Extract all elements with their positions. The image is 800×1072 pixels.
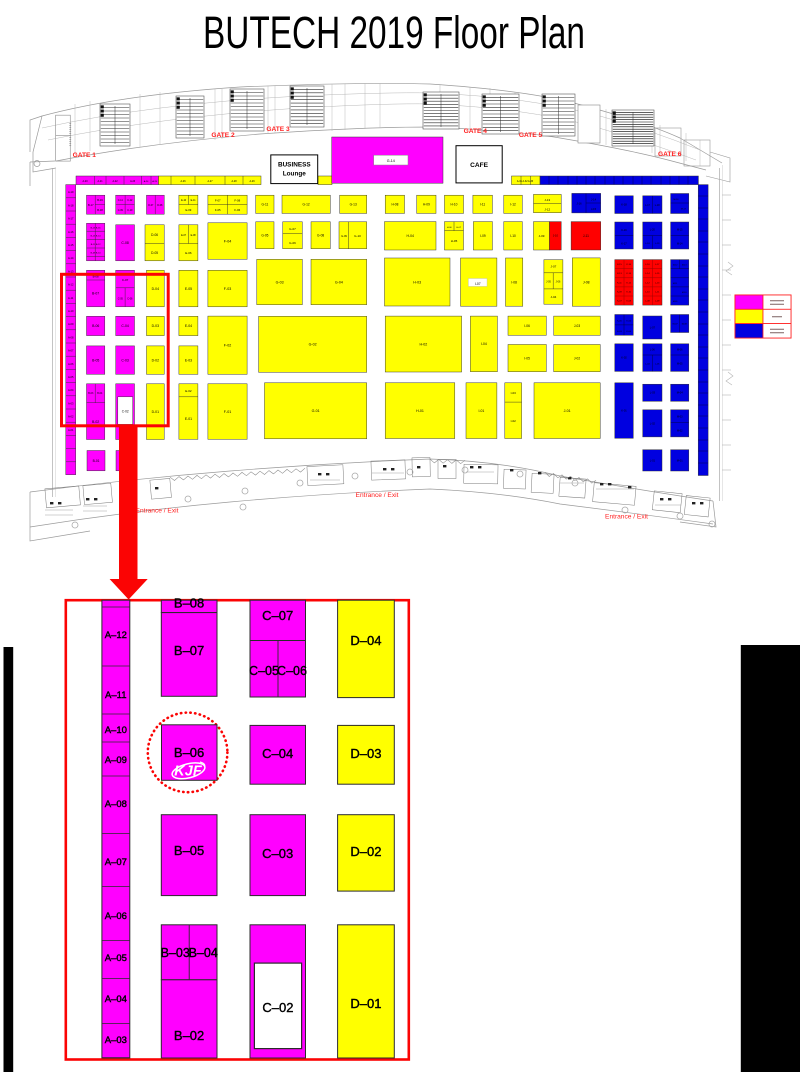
svg-text:C-10: C-10 — [127, 209, 133, 212]
svg-text:A–05: A–05 — [105, 953, 127, 964]
svg-text:A-27: A-27 — [207, 180, 213, 183]
svg-text:K-14: K-14 — [626, 273, 631, 275]
svg-text:L-09: L-09 — [655, 301, 660, 303]
svg-text:J-07: J-07 — [550, 265, 556, 269]
svg-text:H-09: H-09 — [423, 203, 430, 207]
svg-text:K-03: K-03 — [617, 331, 622, 333]
svg-text:A-02: A-02 — [68, 415, 74, 419]
svg-text:I-10: I-10 — [510, 234, 516, 238]
svg-text:E-07: E-07 — [181, 234, 187, 237]
svg-text:L-18: L-18 — [655, 204, 660, 207]
svg-text:A-04: A-04 — [68, 388, 74, 392]
svg-text:I-07: I-07 — [475, 282, 481, 286]
svg-text:J-10: J-10 — [553, 234, 559, 238]
svg-text:J-01: J-01 — [564, 409, 571, 413]
svg-text:K-13: K-13 — [617, 273, 622, 275]
svg-text:C–06: C–06 — [277, 664, 307, 678]
svg-text:A–11: A–11 — [105, 690, 126, 701]
svg-text:A-16: A-16 — [68, 230, 74, 234]
svg-text:L-06: L-06 — [650, 349, 655, 352]
svg-text:M-17: M-17 — [681, 209, 687, 211]
svg-text:B–07: B–07 — [174, 643, 204, 658]
svg-text:B–02: B–02 — [174, 1028, 204, 1043]
svg-text:M-16: M-16 — [674, 199, 680, 201]
svg-text:G-04: G-04 — [335, 280, 343, 284]
svg-text:K-15: K-15 — [617, 264, 622, 266]
svg-text:M-03: M-03 — [677, 416, 683, 419]
svg-text:A-24: A-24 — [144, 180, 149, 183]
svg-text:G-05: G-05 — [261, 233, 268, 237]
svg-text:B–03: B–03 — [161, 946, 190, 960]
svg-text:A–08: A–08 — [105, 799, 127, 810]
svg-text:H-08: H-08 — [391, 203, 398, 207]
svg-text:J-03: J-03 — [574, 324, 580, 328]
svg-text:J-05: J-05 — [546, 280, 551, 283]
svg-text:A-21: A-21 — [97, 180, 103, 183]
svg-text:B–05: B–05 — [174, 843, 204, 858]
svg-text:B-17: B-17 — [88, 203, 94, 207]
svg-text:B-03: B-03 — [88, 392, 94, 395]
svg-text:M-04: M-04 — [677, 391, 683, 395]
svg-text:L-07: L-07 — [650, 325, 656, 329]
svg-text:E-08: E-08 — [191, 234, 197, 237]
svg-text:A-22: A-22 — [112, 180, 118, 183]
svg-text:F-08: F-08 — [234, 198, 240, 202]
svg-text:J-13: J-13 — [544, 198, 550, 202]
svg-text:J-11: J-11 — [583, 234, 589, 238]
svg-text:J-08: J-08 — [583, 280, 590, 284]
svg-text:B-02: B-02 — [92, 420, 99, 424]
svg-text:L-15: L-15 — [655, 273, 660, 275]
svg-text:D–03: D–03 — [350, 746, 381, 761]
svg-text:J-14: J-14 — [591, 198, 597, 202]
svg-text:J-04: J-04 — [550, 295, 556, 299]
svg-text:BUTECH 2019 Floor Plan: BUTECH 2019 Floor Plan — [203, 7, 585, 58]
svg-text:A-26: A-26 — [180, 180, 186, 183]
svg-text:K-07: K-07 — [617, 301, 622, 303]
svg-text:M-07: M-07 — [673, 324, 679, 326]
svg-text:C–05: C–05 — [249, 664, 279, 678]
svg-text:C-12: C-12 — [127, 199, 133, 202]
svg-text:C–02: C–02 — [262, 1000, 293, 1015]
svg-text:A-31 A-32 A-33: A-31 A-32 A-33 — [517, 180, 534, 183]
svg-text:J-16: J-16 — [576, 202, 582, 206]
svg-text:D-04: D-04 — [152, 287, 159, 291]
svg-text:B–06: B–06 — [174, 745, 204, 760]
svg-text:C-06: C-06 — [127, 298, 133, 301]
svg-text:G-03: G-03 — [276, 280, 284, 284]
svg-text:CAFE: CAFE — [470, 162, 489, 169]
svg-text:A-23: A-23 — [130, 180, 136, 183]
svg-text:I-05: I-05 — [524, 356, 530, 360]
svg-text:J-12: J-12 — [544, 207, 550, 211]
svg-text:D-07: D-07 — [148, 204, 154, 207]
svg-text:I-06: I-06 — [524, 324, 530, 328]
svg-text:G-06: G-06 — [289, 241, 296, 245]
svg-text:C–03: C–03 — [262, 846, 293, 861]
svg-text:K-11: K-11 — [617, 282, 622, 284]
svg-text:A–04: A–04 — [105, 994, 127, 1005]
svg-text:K-16: K-16 — [621, 228, 627, 232]
svg-text:E-04: E-04 — [185, 324, 192, 328]
svg-text:L-18: L-18 — [645, 243, 650, 245]
svg-text:H-03: H-03 — [413, 280, 421, 284]
svg-text:M-02: M-02 — [677, 430, 683, 433]
svg-text:I-08: I-08 — [511, 280, 517, 284]
svg-text:L-16: L-16 — [645, 264, 650, 266]
svg-text:G-14: G-14 — [387, 159, 395, 163]
svg-text:GATE 5: GATE 5 — [519, 132, 543, 139]
svg-text:E-09: E-09 — [185, 208, 191, 212]
svg-text:I-01: I-01 — [478, 409, 484, 413]
svg-text:K-09: K-09 — [617, 292, 622, 294]
svg-text:C-07: C-07 — [122, 278, 129, 282]
svg-text:B-18: B-18 — [97, 208, 103, 212]
svg-text:H-02: H-02 — [420, 342, 428, 346]
svg-text:K-12: K-12 — [626, 282, 631, 284]
svg-text:Entrance / Exit: Entrance / Exit — [605, 514, 648, 521]
svg-text:K-16: K-16 — [626, 264, 631, 266]
svg-text:G-11: G-11 — [261, 203, 268, 207]
svg-text:B–04: B–04 — [189, 946, 218, 960]
svg-text:A-01: A-01 — [68, 428, 74, 432]
svg-text:B-09 B-10: B-09 B-10 — [91, 253, 102, 255]
svg-text:A-06: A-06 — [68, 362, 74, 366]
svg-text:H-07: H-07 — [456, 227, 462, 229]
svg-text:I-02: I-02 — [511, 419, 517, 423]
svg-text:B-11 B-12: B-11 B-12 — [91, 244, 101, 246]
svg-text:M-08: M-08 — [682, 324, 688, 326]
svg-text:KJF: KJF — [174, 764, 203, 780]
svg-text:Entrance / Exit: Entrance / Exit — [356, 492, 399, 499]
svg-text:L-14: L-14 — [645, 273, 650, 275]
svg-text:H-06: H-06 — [447, 227, 453, 229]
svg-text:M-05: M-05 — [677, 363, 683, 366]
svg-text:H-01: H-01 — [416, 409, 424, 413]
svg-text:GATE 1: GATE 1 — [73, 152, 97, 159]
svg-text:A-05: A-05 — [68, 375, 74, 379]
svg-text:G-02: G-02 — [309, 343, 317, 347]
svg-text:D-03: D-03 — [152, 324, 159, 328]
svg-text:A-20: A-20 — [82, 180, 88, 183]
svg-text:J-09: J-09 — [539, 234, 545, 238]
svg-text:G-07: G-07 — [289, 227, 296, 231]
svg-text:H-05: H-05 — [451, 239, 458, 243]
svg-text:A-18: A-18 — [68, 203, 74, 207]
svg-text:K-05: K-05 — [617, 321, 622, 323]
svg-text:L-05: L-05 — [655, 364, 660, 366]
svg-text:B-19: B-19 — [97, 198, 103, 202]
svg-text:K-17: K-17 — [621, 242, 627, 246]
svg-text:I-11: I-11 — [480, 203, 485, 207]
svg-text:B-15 B-16: B-15 B-16 — [91, 228, 102, 230]
svg-text:A–03: A–03 — [105, 1035, 127, 1046]
svg-text:G-12: G-12 — [303, 203, 310, 207]
svg-text:A-19: A-19 — [68, 190, 74, 194]
svg-text:D-06: D-06 — [151, 233, 158, 237]
svg-text:Lounge: Lounge — [283, 171, 307, 178]
svg-text:D-05: D-05 — [151, 251, 158, 255]
svg-text:D-01: D-01 — [152, 410, 159, 414]
svg-text:K-01: K-01 — [621, 409, 627, 413]
svg-text:I-09: I-09 — [480, 234, 486, 238]
svg-text:F-01: F-01 — [224, 410, 231, 414]
svg-text:A-08: A-08 — [68, 335, 74, 339]
svg-text:L-19: L-19 — [655, 243, 660, 245]
svg-text:D–02: D–02 — [350, 844, 381, 859]
svg-text:L-17: L-17 — [645, 204, 650, 207]
svg-text:A-29: A-29 — [249, 180, 255, 183]
svg-text:A–07: A–07 — [105, 857, 127, 868]
svg-text:Entrance / Exit: Entrance / Exit — [136, 508, 179, 515]
svg-text:K-10: K-10 — [626, 292, 631, 294]
svg-text:B-06: B-06 — [92, 324, 99, 328]
svg-text:J-06: J-06 — [556, 280, 561, 283]
svg-text:M-15: M-15 — [677, 229, 683, 232]
svg-text:E-01: E-01 — [185, 417, 192, 421]
svg-text:D–04: D–04 — [350, 633, 381, 648]
svg-text:E-03: E-03 — [185, 358, 192, 362]
svg-text:F-04: F-04 — [224, 239, 231, 243]
svg-text:B-13 B-14: B-13 B-14 — [91, 236, 102, 238]
svg-text:L-13: L-13 — [655, 282, 660, 284]
svg-text:GATE 3: GATE 3 — [266, 126, 290, 133]
svg-text:A-12: A-12 — [68, 283, 74, 287]
svg-text:C-08: C-08 — [121, 241, 128, 245]
svg-text:E-02: E-02 — [185, 389, 192, 393]
svg-text:A–06: A–06 — [105, 911, 127, 922]
svg-text:C-04: C-04 — [121, 324, 128, 328]
svg-text:G-13: G-13 — [350, 203, 357, 207]
svg-text:K-18: K-18 — [621, 203, 627, 207]
svg-text:C-09: C-09 — [118, 209, 124, 212]
svg-text:D–01: D–01 — [350, 996, 381, 1011]
svg-text:L-12: L-12 — [645, 282, 650, 284]
svg-text:L-08: L-08 — [645, 301, 650, 303]
svg-text:A-07: A-07 — [68, 349, 74, 353]
svg-text:B–08: B–08 — [174, 595, 204, 610]
svg-text:E-05: E-05 — [185, 287, 192, 291]
svg-text:L-20: L-20 — [650, 228, 656, 232]
svg-text:GATE 4: GATE 4 — [464, 128, 488, 135]
svg-text:L-03: L-03 — [650, 391, 656, 395]
svg-text:A-28: A-28 — [231, 180, 237, 183]
svg-text:F-03: F-03 — [224, 287, 231, 291]
svg-text:E-06: E-06 — [185, 251, 192, 255]
svg-text:B-04: B-04 — [97, 392, 103, 395]
svg-text:B-07: B-07 — [92, 292, 99, 296]
svg-text:G-09: G-09 — [341, 234, 347, 238]
svg-text:E-10: E-10 — [181, 199, 187, 202]
svg-text:A-10: A-10 — [68, 309, 74, 313]
svg-text:H-10: H-10 — [451, 203, 458, 207]
svg-text:J-15: J-15 — [591, 207, 597, 211]
svg-text:F-07: F-07 — [215, 198, 221, 202]
svg-text:I-03: I-03 — [511, 391, 517, 395]
svg-text:L-17: L-17 — [655, 264, 660, 266]
svg-text:A-15: A-15 — [68, 243, 74, 247]
svg-text:K-02: K-02 — [621, 356, 627, 360]
svg-text:A-11: A-11 — [68, 296, 74, 300]
svg-text:F-02: F-02 — [224, 344, 231, 348]
svg-text:GATE 2: GATE 2 — [211, 132, 235, 139]
svg-text:F-06: F-06 — [234, 208, 240, 212]
svg-text:E-11: E-11 — [191, 199, 197, 202]
svg-text:K-04: K-04 — [626, 331, 631, 333]
svg-text:H-04: H-04 — [407, 234, 414, 238]
svg-text:C-02: C-02 — [122, 410, 129, 414]
svg-text:L-02: L-02 — [650, 421, 656, 425]
svg-text:L-10: L-10 — [645, 292, 650, 294]
svg-text:GATE 6: GATE 6 — [658, 151, 682, 158]
svg-text:A–10: A–10 — [105, 725, 127, 736]
svg-text:A-25: A-25 — [152, 180, 157, 183]
svg-text:K-06: K-06 — [626, 321, 631, 323]
svg-text:G-10: G-10 — [354, 234, 361, 238]
svg-text:C-05: C-05 — [118, 298, 124, 301]
svg-text:A–12: A–12 — [105, 630, 127, 641]
svg-text:BUSINESS: BUSINESS — [278, 162, 311, 169]
svg-text:D-02: D-02 — [152, 358, 159, 362]
svg-text:L-04: L-04 — [645, 364, 650, 366]
svg-text:I-12: I-12 — [510, 203, 516, 207]
svg-text:C-11: C-11 — [118, 199, 124, 202]
svg-text:G-01: G-01 — [312, 409, 320, 413]
svg-text:J-02: J-02 — [574, 356, 580, 360]
svg-text:M-06: M-06 — [677, 349, 683, 352]
svg-text:I-04: I-04 — [481, 342, 487, 346]
svg-text:K-08: K-08 — [626, 301, 631, 303]
svg-text:L-01: L-01 — [650, 458, 656, 462]
svg-text:B-01: B-01 — [93, 459, 100, 463]
svg-text:G-08: G-08 — [317, 233, 324, 237]
svg-text:D-08: D-08 — [157, 204, 163, 207]
svg-text:A-14: A-14 — [68, 256, 74, 260]
svg-text:A-03: A-03 — [68, 401, 74, 405]
svg-text:C-03: C-03 — [121, 358, 128, 362]
svg-text:A-17: A-17 — [68, 217, 74, 221]
svg-text:M-14: M-14 — [677, 243, 683, 246]
svg-text:F-05: F-05 — [215, 208, 221, 212]
svg-text:A-09: A-09 — [68, 322, 74, 326]
svg-text:B-05: B-05 — [92, 358, 99, 362]
svg-text:C–07: C–07 — [262, 608, 293, 623]
svg-text:A–09: A–09 — [105, 755, 127, 766]
svg-text:M-01: M-01 — [677, 458, 683, 462]
svg-text:C–04: C–04 — [262, 746, 293, 761]
